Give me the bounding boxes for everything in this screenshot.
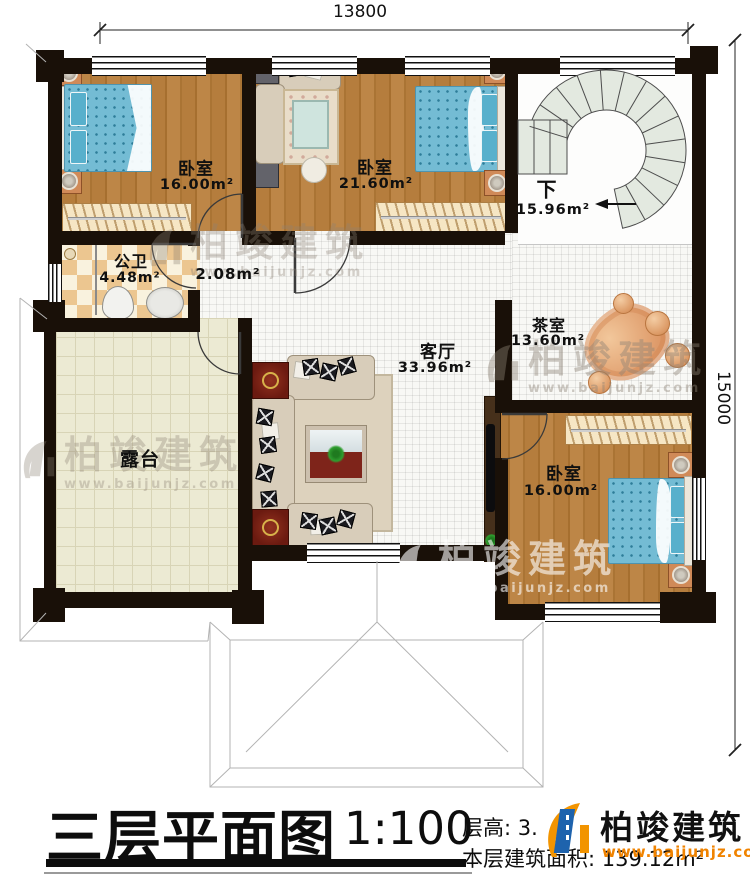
- tea-room-area: 13.60m²: [511, 333, 585, 349]
- wall: [400, 545, 498, 561]
- side-table: [252, 509, 289, 546]
- bed-pillow: [481, 94, 498, 126]
- wall: [188, 231, 200, 246]
- window: [272, 56, 357, 76]
- floor-cushion: [665, 343, 690, 368]
- window: [560, 56, 675, 76]
- plant: [327, 445, 345, 463]
- corner-table: [255, 161, 279, 188]
- terrace-label: 露台: [120, 445, 160, 472]
- floor-cushion: [613, 293, 634, 314]
- wall: [44, 332, 56, 590]
- bed-pillow: [481, 130, 498, 162]
- throw-pillow: [260, 490, 277, 507]
- toilet: [102, 286, 134, 320]
- tv: [486, 424, 495, 512]
- bathroom-label: 公卫: [114, 248, 148, 272]
- floor-cushion: [588, 371, 611, 394]
- wall-pillar: [36, 50, 64, 82]
- title-underline: [46, 859, 466, 867]
- wall-pillar: [232, 590, 264, 624]
- wall: [495, 300, 512, 400]
- wall: [238, 318, 252, 592]
- throw-pillow: [320, 363, 339, 382]
- wall: [62, 231, 198, 245]
- brand-site: www.baijunjz.com: [602, 843, 750, 861]
- shower-head: [64, 248, 76, 260]
- floor-plan: 卧室 16.00m² 卧室 21.60m² 下 15.96m² 公卫 4.48m…: [0, 0, 750, 880]
- wall: [350, 231, 505, 245]
- bedroom2-label: 卧室: [357, 154, 393, 179]
- wardrobe: [375, 202, 507, 232]
- hallway-area: 2.08m²: [195, 265, 260, 283]
- stairs-area: 15.96m²: [516, 202, 590, 218]
- bedroom3-area: 16.00m²: [524, 483, 598, 499]
- bed-pillow: [70, 92, 87, 126]
- brand-logo: 柏竣建筑 www.baijunjz.com: [538, 793, 750, 877]
- throw-pillow: [300, 512, 318, 530]
- title-underline-thin: [44, 872, 472, 874]
- wardrobe: [565, 415, 692, 445]
- dimension-width: 13800: [333, 2, 387, 22]
- dimension-height: 15000: [713, 371, 733, 425]
- double-bed: [608, 476, 692, 564]
- wall-pillar: [660, 592, 716, 623]
- brand-name: 柏竣建筑: [600, 801, 744, 849]
- living-room-area: 33.96m²: [398, 360, 472, 376]
- window: [92, 56, 206, 76]
- bed-sheet: [656, 479, 671, 563]
- stairs-label: 下: [537, 174, 558, 203]
- wall: [242, 58, 256, 245]
- bedroom2-area: 21.60m²: [339, 176, 413, 192]
- shower-partition: [95, 245, 97, 315]
- throw-pillow: [259, 436, 277, 454]
- brand-logo-icon: [538, 795, 594, 871]
- wall: [495, 458, 508, 607]
- throw-pillow: [302, 358, 320, 376]
- window: [545, 602, 660, 622]
- bedroom1-area: 16.00m²: [160, 177, 234, 193]
- bed-pillow: [70, 130, 87, 164]
- nightstand: [668, 452, 694, 478]
- window: [692, 478, 706, 560]
- double-bed: [56, 84, 150, 170]
- coffee-table: [305, 425, 367, 483]
- sink: [146, 287, 184, 319]
- stair-landing: [518, 74, 692, 245]
- bed-sheet: [117, 85, 151, 171]
- wall: [56, 592, 240, 608]
- wall: [256, 231, 295, 245]
- throw-pillow: [256, 408, 275, 427]
- floor-cushion: [645, 311, 670, 336]
- wardrobe: [62, 203, 192, 233]
- window: [48, 264, 62, 302]
- window: [405, 56, 490, 76]
- bedroom1-label: 卧室: [178, 155, 214, 180]
- living-room-label: 客厅: [420, 338, 456, 363]
- wall: [252, 545, 307, 561]
- bathroom-area: 4.48m²: [99, 270, 160, 286]
- bedroom3-label: 卧室: [546, 460, 582, 485]
- sofa: [255, 84, 285, 164]
- wall: [495, 604, 545, 620]
- tea-table: [292, 100, 329, 149]
- throw-pillow: [319, 517, 338, 536]
- wall: [48, 318, 200, 332]
- floor-cushion: [301, 157, 327, 183]
- window: [307, 543, 400, 563]
- wall: [495, 400, 692, 413]
- side-table: [252, 362, 289, 399]
- wall-pillar: [33, 300, 65, 332]
- double-bed: [415, 84, 505, 170]
- plan-scale: 1:100: [344, 802, 474, 855]
